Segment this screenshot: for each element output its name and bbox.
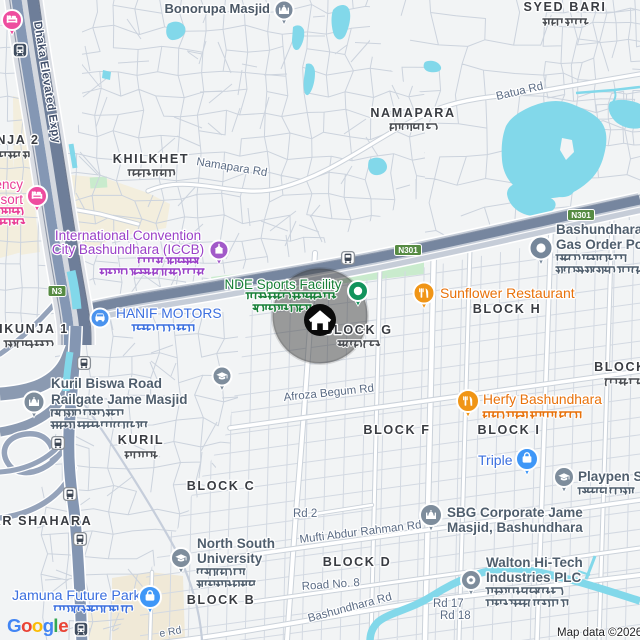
svg-text:Herfy Bashundhara: Herfy Bashundhara — [483, 392, 602, 407]
svg-text:Masjid, Bashundhara: Masjid, Bashundhara — [447, 520, 583, 535]
svg-text:BLOCK E: BLOCK E — [594, 360, 640, 374]
svg-text:NJA 2: NJA 2 — [0, 133, 40, 147]
svg-text:Walton Hi-Tech: Walton Hi-Tech — [486, 555, 583, 570]
svg-text:SYED BARI: SYED BARI — [524, 0, 607, 14]
svg-text:Rd 17: Rd 17 — [433, 598, 464, 610]
svg-text:North South: North South — [197, 536, 275, 551]
svg-text:Bonorupa Masjid: Bonorupa Masjid — [165, 1, 271, 16]
svg-text:BLOCK I: BLOCK I — [478, 423, 541, 437]
svg-text:o: o — [21, 615, 32, 636]
svg-text:N301: N301 — [398, 246, 418, 255]
svg-text:KHILKHET: KHILKHET — [113, 152, 189, 166]
svg-text:Rd 2: Rd 2 — [293, 508, 317, 520]
svg-text:Triple: Triple — [478, 452, 513, 468]
svg-text:g: g — [43, 615, 54, 636]
svg-text:G: G — [7, 615, 21, 636]
svg-text:Jamuna Future Park: Jamuna Future Park — [12, 588, 141, 604]
svg-text:Industries PLC: Industries PLC — [486, 570, 582, 585]
svg-text:BLOCK H: BLOCK H — [473, 302, 542, 316]
svg-text:NAMAPARA: NAMAPARA — [370, 106, 455, 120]
svg-text:o: o — [32, 615, 43, 636]
svg-text:BLOCK F: BLOCK F — [363, 423, 430, 437]
svg-text:Railgate Jame Masjid: Railgate Jame Masjid — [51, 392, 188, 407]
svg-text:BLOCK D: BLOCK D — [323, 555, 392, 569]
svg-text:NDE Sports Facility: NDE Sports Facility — [224, 277, 341, 292]
svg-text:AR SHAHARA: AR SHAHARA — [0, 514, 92, 528]
svg-text:BLOCK B: BLOCK B — [187, 593, 256, 607]
svg-text:Rd 18: Rd 18 — [440, 610, 471, 622]
svg-text:N301: N301 — [571, 211, 591, 220]
svg-text:Kuril Biswa Road: Kuril Biswa Road — [51, 376, 162, 391]
svg-text:Gas Order Poin: Gas Order Poin — [556, 237, 640, 252]
svg-text:N3: N3 — [52, 287, 63, 296]
svg-text:BLOCK C: BLOCK C — [187, 479, 256, 493]
svg-text:HANIF MOTORS: HANIF MOTORS — [116, 306, 222, 321]
svg-text:Playpen S: Playpen S — [578, 469, 640, 484]
svg-text:IKUNJA 1: IKUNJA 1 — [0, 322, 69, 336]
svg-text:ency: ency — [0, 177, 23, 192]
svg-text:e: e — [58, 615, 68, 636]
svg-text:University: University — [197, 551, 263, 566]
svg-text:Map data ©2026: Map data ©2026 — [557, 627, 640, 639]
svg-text:Bashundhara: Bashundhara — [556, 222, 640, 237]
svg-text:International Convention: International Convention — [55, 228, 201, 243]
svg-text:City Bashundhara (ICCB): City Bashundhara (ICCB) — [52, 242, 204, 257]
svg-text:SBG Corporate Jame: SBG Corporate Jame — [447, 505, 583, 520]
svg-text:esort: esort — [0, 192, 23, 207]
svg-text:KURIL: KURIL — [118, 433, 164, 447]
svg-text:Sunflower Restaurant: Sunflower Restaurant — [440, 285, 575, 301]
